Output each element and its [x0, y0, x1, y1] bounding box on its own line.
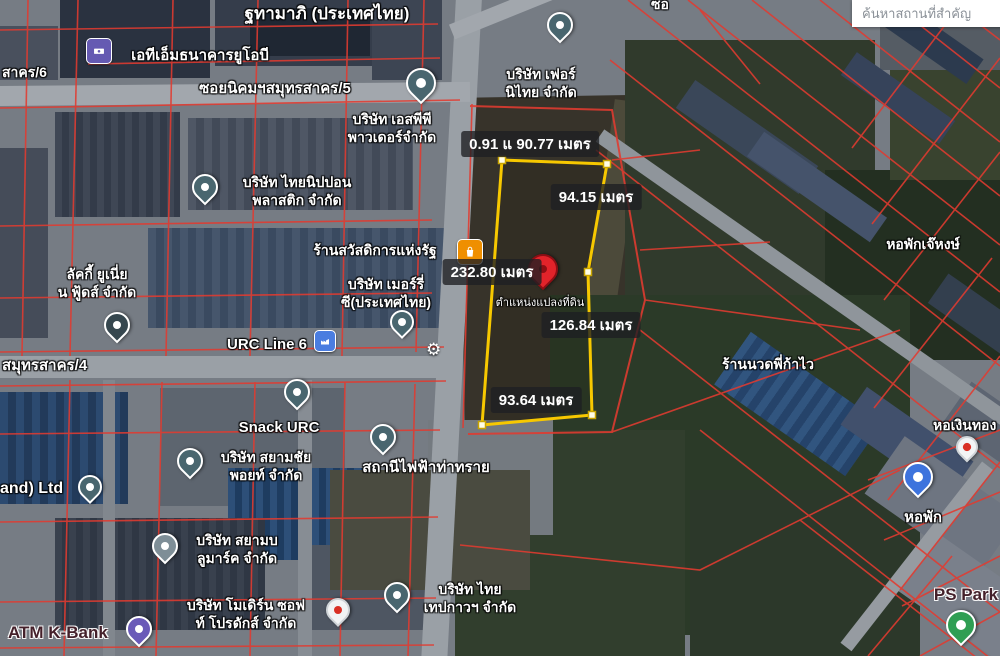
measure-top: 0.91 แ 90.77 เมตร	[461, 131, 599, 157]
poi-massage-shop[interactable]: ร้านนวดพี่ก้าไว	[722, 356, 814, 374]
poi-ferni-thai[interactable]: บริษัท เฟอร์ นิไทย จำกัด	[505, 66, 577, 101]
poi-atm-uob[interactable]: เอทีเอ็มธนาคารยูโอบี	[131, 47, 269, 66]
poi-thai-nippon[interactable]: บริษัท ไทยนิปปอน พลาสติก จำกัด	[243, 174, 352, 209]
poi-uthamaki[interactable]: ฐทามาภิ (ประเทศไทย)	[245, 3, 410, 24]
road	[103, 380, 115, 656]
poi-pin-ferni-thai[interactable]	[542, 7, 579, 44]
banknote-icon	[92, 44, 106, 58]
poi-lucky-union[interactable]: ลัคกี้ ยูเนี่ย น ฟู้ดส์ จำกัด	[58, 266, 137, 301]
poi-power-station[interactable]: สถานีไฟฟ้าท่าทราย	[362, 459, 490, 478]
plot-caption: ตำแหน่งแปลงที่ดิน	[496, 297, 585, 311]
factory-icon[interactable]	[314, 330, 336, 352]
poi-dormitory[interactable]: หอพัก	[904, 509, 942, 528]
poi-siam-blumark[interactable]: บริษัท สยามบ ลูมาร์ค จำกัด	[196, 532, 277, 567]
measure-bottom: 93.64 เมตร	[491, 387, 582, 413]
poi-atm-kbank[interactable]: ATM K-Bank	[8, 622, 108, 643]
landmark-search-box[interactable]: ค้นหาสถานที่สำคัญ	[852, 0, 1000, 27]
road-label-soi-partial: ซอ	[651, 0, 669, 14]
atm-uob-icon[interactable]	[86, 38, 112, 64]
gear-icon: ⚙	[426, 340, 441, 360]
satellite-map[interactable]: 0.91 แ 90.77 เมตร 94.15 เมตร 232.80 เมตร…	[0, 0, 1000, 656]
poi-ps-park[interactable]: PS Park	[934, 584, 998, 605]
poi-state-welfare-shop[interactable]: ร้านสวัสดิการแห่งรัฐ	[313, 242, 436, 260]
poi-and-ltd[interactable]: and) Ltd	[0, 479, 63, 499]
poi-modern-soft[interactable]: บริษัท โมเดิร์น ซอฟ ท์ โปรดักส์ จำกัด	[187, 597, 305, 632]
measure-left: 232.80 เมตร	[443, 259, 542, 285]
poi-urc-line-6[interactable]: URC Line 6	[227, 336, 307, 355]
shopping-bag-icon	[463, 245, 477, 259]
poi-pin-lucky[interactable]	[99, 307, 136, 344]
road-label-nikhom5: ซอยนิคมฯสมุทรสาคร/5	[199, 80, 351, 99]
poi-pin-power-station[interactable]	[365, 419, 402, 456]
road-label-sakhon6: สาคร/6	[2, 64, 47, 82]
poi-thai-tape[interactable]: บริษัท ไทย เทปกาวฯ จำกัด	[424, 581, 516, 616]
poi-spp-powder[interactable]: บริษัท เอสพีพี พาวเดอร์จำกัด	[348, 111, 436, 146]
road-label-sakhon4: สมุทรสาคร/4	[2, 357, 87, 376]
poi-snack-urc[interactable]: Snack URC	[239, 419, 320, 438]
poi-ho-ngern-thong[interactable]: หอเงินทอง	[933, 417, 996, 435]
measure-lower-right: 126.84 เมตร	[542, 312, 641, 338]
search-placeholder: ค้นหาสถานที่สำคัญ	[862, 3, 971, 24]
measure-upper-right: 94.15 เมตร	[551, 184, 642, 210]
poi-merry-c[interactable]: บริษัท เมอร์รี่ ซี(ประเทศไทย)	[341, 276, 431, 311]
poi-jae-hong-dorm[interactable]: หอพักเจ๊หงษ์	[886, 236, 960, 254]
poi-siam-chai[interactable]: บริษัท สยามชัย พอยท์ จำกัด	[221, 449, 311, 484]
factory-glyph-icon	[319, 335, 331, 347]
